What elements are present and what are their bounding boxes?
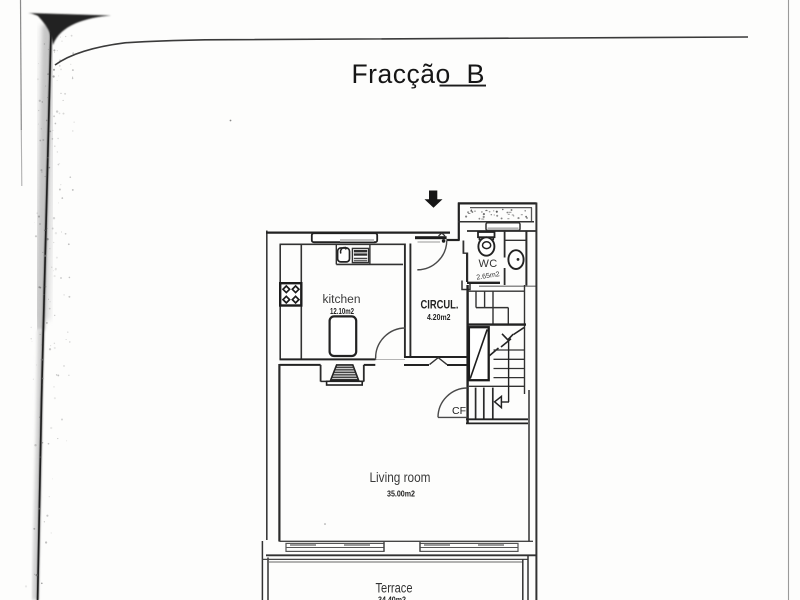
svg-text:35.00m2: 35.00m2 [387, 490, 415, 499]
svg-text:Terrace: Terrace [376, 581, 413, 596]
svg-text:CF: CF [452, 405, 466, 417]
svg-text:34.40m2: 34.40m2 [378, 596, 406, 600]
svg-text:12.10m2: 12.10m2 [330, 307, 355, 316]
svg-text:B: B [467, 59, 485, 89]
svg-text:WC: WC [479, 258, 498, 270]
svg-text:CIRCUL.: CIRCUL. [421, 300, 459, 312]
svg-text:kitchen: kitchen [323, 294, 361, 306]
svg-text:4.20m2: 4.20m2 [427, 313, 451, 322]
svg-text:Fracção: Fracção [352, 59, 451, 89]
svg-text:Living room: Living room [370, 469, 431, 485]
